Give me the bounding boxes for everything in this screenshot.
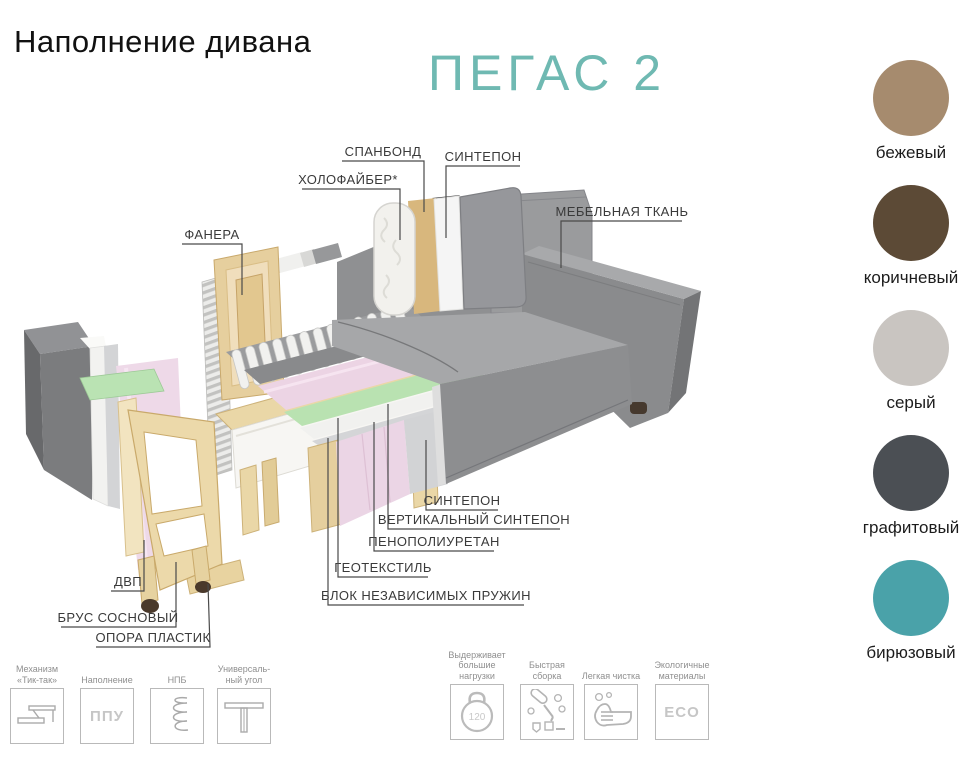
label-furniture-fabric: МЕБЕЛЬНАЯ ТКАНЬ [556, 204, 689, 219]
feature-label: Экологичные материалы [640, 651, 724, 681]
easy-cleaning-icon [584, 684, 638, 740]
ppu-text: ППУ [90, 708, 124, 725]
product-name: ПЕГАС 2 [428, 44, 666, 102]
kettlebell-icon: 120 [450, 684, 504, 740]
label-plastic-support: ОПОРА ПЛАСТИК [96, 630, 211, 645]
swatch-circle[interactable] [873, 60, 949, 136]
label-springs: БЛОК НЕЗАВИСИМЫХ ПРУЖИН [321, 588, 531, 603]
sofa-exploded-diagram: СПАНБОНД СИНТЕПОН ХОЛОФАЙБЕР* МЕБЕЛЬНАЯ … [0, 118, 760, 668]
swatch-circle[interactable] [873, 435, 949, 511]
quick-assembly-icon [520, 684, 574, 740]
spring-icon [150, 688, 204, 744]
label-sintepon-seat: СИНТЕПОН [424, 493, 501, 508]
swatch-circle[interactable] [873, 560, 949, 636]
swatch-brown: коричневый [864, 185, 958, 288]
color-swatches: бежевый коричневый серый графитовый бирю… [853, 60, 969, 663]
swatch-graphite: графитовый [863, 435, 959, 538]
swatch-label: бежевый [876, 143, 946, 163]
label-sintepon-top: СИНТЕПОН [445, 149, 522, 164]
swatch-circle[interactable] [873, 310, 949, 386]
label-polyurethane: ПЕНОПОЛИУРЕТАН [368, 534, 499, 549]
back-pillow-cutaway [374, 188, 526, 315]
swatch-label: серый [886, 393, 935, 413]
universal-corner-icon [217, 688, 271, 744]
label-spunbond: СПАНБОНД [345, 144, 422, 159]
page-title: Наполнение дивана [14, 24, 311, 60]
label-vertical-sintepon: ВЕРТИКАЛЬНЫЙ СИНТЕПОН [378, 512, 570, 527]
swatch-turquoise: бирюзовый [866, 560, 955, 663]
feature-universal-corner: Универсаль- ный угол [202, 655, 286, 744]
label-pine-timber: БРУС СОСНОВЫЙ [57, 610, 178, 625]
swatch-label: графитовый [863, 518, 959, 538]
tiktak-mechanism-icon [10, 688, 64, 744]
eco-icon: ECO [655, 684, 709, 740]
feature-eco: Экологичные материалы ECO [640, 651, 724, 740]
label-holofiber: ХОЛОФАЙБЕР* [298, 172, 398, 187]
label-plywood: ФАНЕРА [184, 227, 239, 242]
kettlebell-weight-text: 120 [469, 712, 486, 723]
swatch-label: бирюзовый [866, 643, 955, 663]
label-geotextile: ГЕОТЕКСТИЛЬ [334, 560, 432, 575]
eco-text: ECO [664, 704, 700, 721]
swatch-label: коричневый [864, 268, 958, 288]
ppu-filling-icon: ППУ [80, 688, 134, 744]
swatch-circle[interactable] [873, 185, 949, 261]
fabric-pillow [460, 188, 526, 309]
swatch-gray: серый [873, 310, 949, 413]
holofiber-layer [374, 203, 415, 315]
label-fiberboard: ДВП [114, 574, 142, 589]
feature-label: Универсаль- ный угол [202, 655, 286, 685]
swatch-beige: бежевый [873, 60, 949, 163]
